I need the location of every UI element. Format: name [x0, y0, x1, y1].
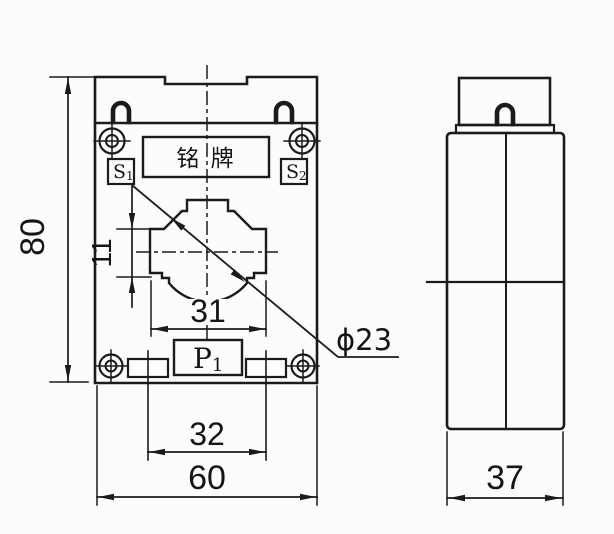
terminal-s2-label: S2: [286, 161, 307, 183]
nameplate-label: 铭 牌: [176, 146, 235, 172]
dimension-hole-offset: [117, 186, 151, 307]
screw-boss-bottom-right: [287, 350, 319, 382]
dim-label-32: 32: [189, 416, 225, 452]
dim-label-11: 11: [86, 238, 117, 267]
dim-label-37: 37: [486, 459, 524, 497]
terminal-p1-label: P1: [193, 342, 223, 376]
screw-boss-top-left: [94, 123, 130, 159]
side-view: [427, 78, 564, 429]
dim-label-phi23: ϕ23: [336, 323, 392, 357]
technical-drawing: 80 11 31 32 60 ϕ23 37 铭 牌 S1 S2 P1: [0, 0, 614, 534]
terminal-s1-label: S1: [113, 161, 134, 183]
dim-label-31: 31: [190, 293, 226, 329]
clip-arch-right: [276, 103, 292, 122]
clip-arch-left: [113, 103, 129, 122]
side-top-cap: [459, 78, 550, 125]
screw-boss-top-right: [284, 123, 320, 159]
side-clip-arch: [497, 105, 513, 124]
screw-boss-bottom-left: [95, 350, 127, 382]
dimension-overall-height: [50, 77, 95, 382]
dim-label-60: 60: [188, 459, 226, 497]
front-view: [94, 65, 320, 460]
dim-label-80: 80: [14, 218, 52, 256]
